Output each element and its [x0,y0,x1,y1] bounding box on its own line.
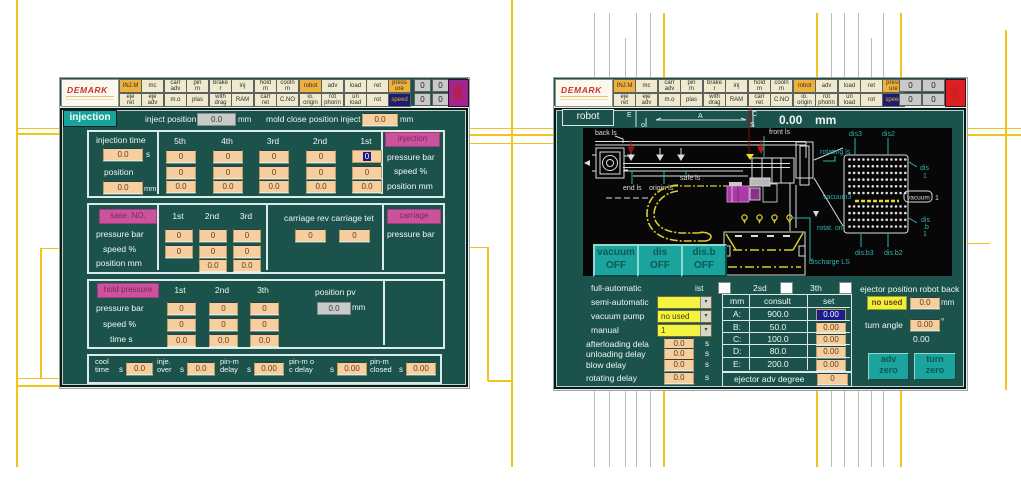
svg-text:1: 1 [923,231,927,238]
svg-text:A: A [698,113,703,120]
svg-text:.b: .b [923,224,929,231]
svg-text:1: 1 [923,173,927,180]
svg-text:dis: dis [920,165,929,172]
svg-text:C: C [752,111,757,118]
svg-text:rotating ls: rotating ls [820,149,851,156]
svg-text:vacuum3: vacuum3 [823,194,852,201]
svg-text:front ls: front ls [769,129,791,136]
svg-text:dis3: dis3 [849,131,862,138]
svg-text:1: 1 [935,195,939,202]
svg-text:vacuum: vacuum [907,195,930,202]
svg-text:end ls: end ls [623,185,642,192]
svg-text:origin ls: origin ls [649,185,674,192]
svg-text:rotat. ori.: rotat. ori. [817,225,845,232]
svg-text:discharge LS: discharge LS [809,259,850,266]
svg-text:dis2: dis2 [882,131,895,138]
svg-text:dis.b2: dis.b2 [884,250,903,257]
svg-text:dis: dis [921,217,930,224]
svg-text:dis.b3: dis.b3 [855,250,874,257]
svg-text:back ls: back ls [595,130,617,137]
svg-text:safe ls: safe ls [680,175,701,182]
svg-text:E: E [627,112,632,119]
